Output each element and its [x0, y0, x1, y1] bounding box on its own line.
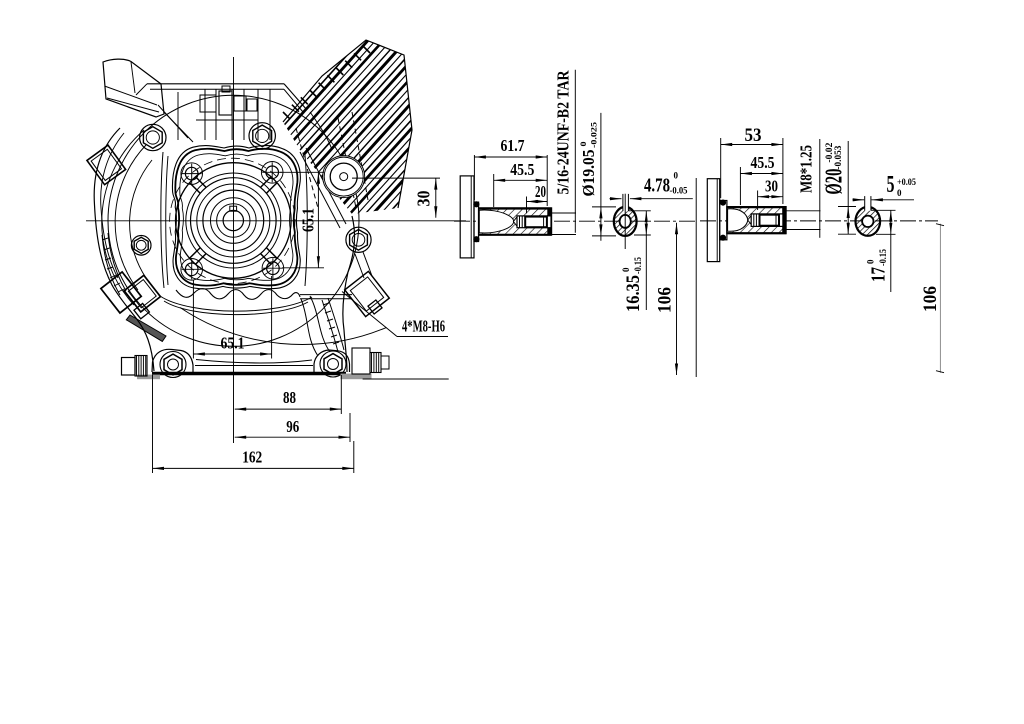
svg-text:61.7: 61.7 [501, 136, 525, 155]
svg-text:17: 17 [868, 267, 890, 282]
svg-text:65.1: 65.1 [221, 334, 245, 353]
svg-text:45.5: 45.5 [751, 153, 775, 172]
svg-text:Ø20: Ø20 [822, 169, 848, 195]
svg-text:0: 0 [674, 171, 679, 181]
svg-text:-0.053: -0.053 [833, 145, 843, 170]
svg-text:106: 106 [920, 286, 941, 312]
svg-text:0: 0 [866, 259, 876, 264]
svg-text:0: 0 [897, 189, 902, 199]
svg-text:+0.05: +0.05 [897, 178, 916, 188]
svg-text:65.1: 65.1 [299, 208, 318, 232]
svg-text:96: 96 [286, 417, 299, 436]
svg-text:53: 53 [745, 125, 762, 146]
svg-text:0: 0 [621, 267, 631, 272]
svg-text:5/16-24UNF-B2 TAR: 5/16-24UNF-B2 TAR [554, 70, 573, 195]
svg-text:16.35: 16.35 [623, 275, 644, 312]
svg-text:-0.025: -0.025 [589, 122, 599, 148]
svg-text:30: 30 [414, 191, 434, 207]
svg-text:Ø19.05: Ø19.05 [579, 150, 598, 197]
svg-text:-0.05: -0.05 [670, 186, 688, 196]
svg-text:4*M8-H6: 4*M8-H6 [402, 317, 445, 336]
svg-text:5: 5 [887, 172, 895, 198]
svg-text:106: 106 [655, 287, 676, 313]
svg-text:-0.15: -0.15 [878, 249, 888, 266]
svg-text:88: 88 [283, 388, 296, 407]
svg-text:4.78: 4.78 [644, 175, 670, 197]
svg-text:45.5: 45.5 [510, 160, 534, 179]
svg-text:30: 30 [765, 177, 778, 196]
svg-text:0: 0 [578, 142, 588, 147]
svg-text:162: 162 [242, 448, 262, 467]
svg-text:M8*1.25: M8*1.25 [797, 145, 816, 193]
svg-text:-0.15: -0.15 [633, 257, 643, 274]
svg-text:20: 20 [535, 182, 546, 201]
